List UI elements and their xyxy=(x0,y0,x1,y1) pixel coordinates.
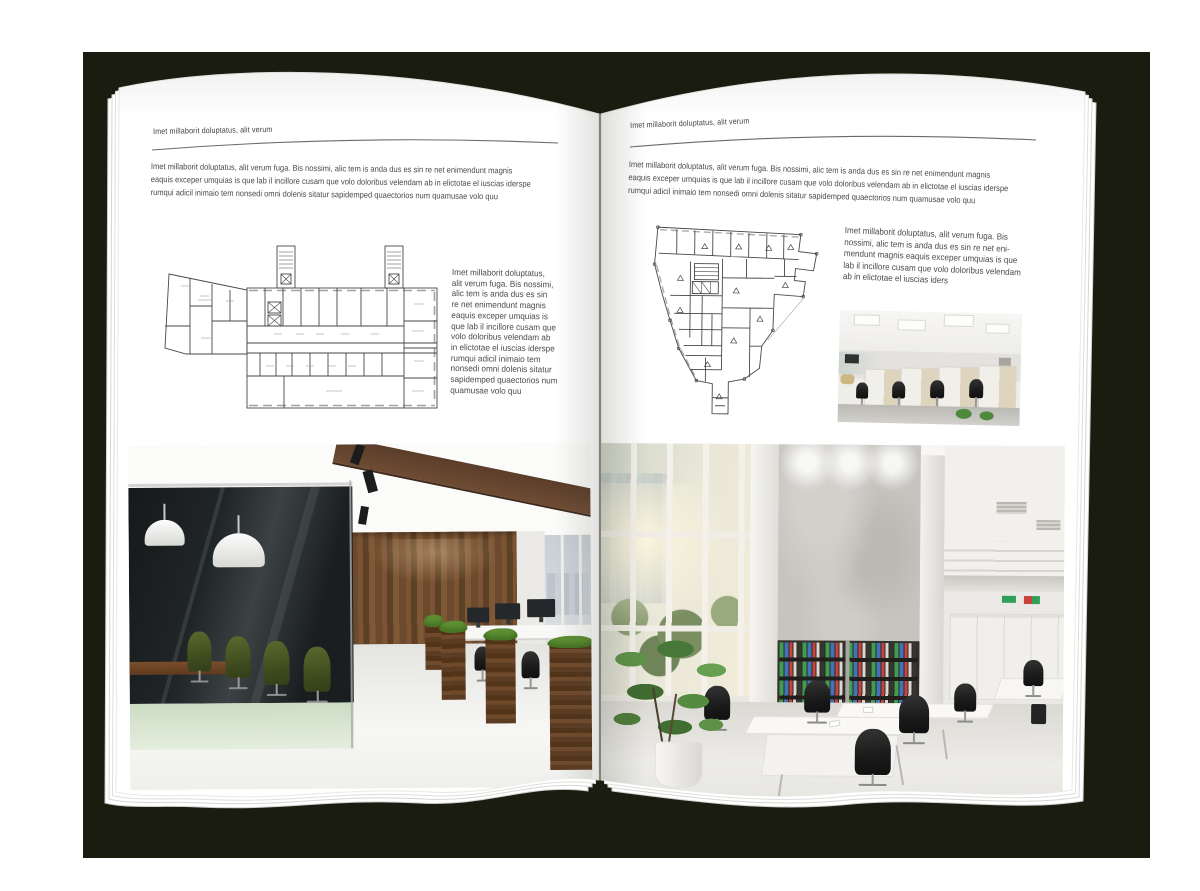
ceiling-light-panel xyxy=(898,319,926,331)
black-office-chair xyxy=(804,680,830,712)
waste-bin xyxy=(1031,704,1046,724)
desktop-monitor xyxy=(495,603,520,619)
floor-plan-right xyxy=(649,217,831,419)
small-plant xyxy=(980,411,994,420)
paper-sheet xyxy=(863,707,873,713)
black-office-chair xyxy=(899,695,929,733)
mezzanine xyxy=(944,445,1065,596)
wood-planter xyxy=(441,630,465,700)
photo-cubicle-office xyxy=(837,310,1021,426)
black-office-chair xyxy=(1023,660,1043,686)
black-office-chair xyxy=(855,729,891,775)
wood-planter xyxy=(485,637,516,723)
desktop-monitor xyxy=(467,607,489,622)
exit-sign xyxy=(1002,596,1016,603)
right-spine-shade xyxy=(600,80,646,792)
wall-monitor xyxy=(845,354,859,363)
glass-meeting-room xyxy=(128,480,354,750)
railing xyxy=(944,541,1064,576)
photo-atrium-office xyxy=(598,443,1065,816)
black-office-chair xyxy=(856,382,868,398)
pendant-lamp-stem xyxy=(163,504,165,520)
green-office-chair xyxy=(187,631,211,671)
green-office-chair xyxy=(303,647,330,692)
black-office-chair xyxy=(892,381,905,398)
right-header-rule xyxy=(628,128,1040,152)
desktop-monitor xyxy=(527,599,555,617)
left-sidebar-paragraph: Imet millaborit doluptatus, alit verum f… xyxy=(450,267,559,397)
photo-office-wood-interior xyxy=(128,443,592,790)
green-office-chair xyxy=(225,636,250,678)
ceiling-light-panel xyxy=(986,323,1010,334)
black-office-chair xyxy=(954,683,976,711)
ceiling-light-panel xyxy=(944,314,974,327)
plan-walls xyxy=(165,246,437,408)
black-office-chair xyxy=(969,379,983,398)
paragraph-line: eaquis exceper umquias is xyxy=(451,310,558,322)
left-spine-shade xyxy=(556,80,600,792)
paragraph-line: quamusae volo quu xyxy=(450,385,557,397)
lounge-chair xyxy=(840,374,854,384)
black-office-chair xyxy=(521,651,539,678)
meeting-room-floor xyxy=(130,702,354,750)
vent-grille xyxy=(1036,520,1060,530)
floor-plan-left xyxy=(156,226,446,416)
wall-wash-lights xyxy=(779,444,921,505)
plant-pot xyxy=(655,741,703,787)
plan-walls xyxy=(653,227,817,415)
wood-wall-glow xyxy=(369,538,499,584)
right-callout-paragraph: Imet millaborit doluptatus, alit verum f… xyxy=(843,225,1023,290)
left-header-rule xyxy=(150,134,562,154)
right-intro-paragraph: Imet millaborit doluptatus, alit verum f… xyxy=(628,158,1009,209)
ceiling-light-panel xyxy=(854,314,880,326)
first-aid-signs xyxy=(1024,596,1040,604)
wood-planter xyxy=(425,624,441,670)
small-plant xyxy=(956,409,972,419)
plan-annotations xyxy=(181,286,424,391)
magazine-mockup-scene: Imet millaborit doluptatus, alit verum I… xyxy=(0,0,1200,891)
balcony-edge xyxy=(944,575,1064,592)
cubicle-workstation xyxy=(978,365,1017,410)
left-intro-paragraph: Imet millaborit doluptatus, alit verum f… xyxy=(151,160,531,204)
black-office-chair xyxy=(930,380,944,398)
white-column xyxy=(749,444,781,746)
vent-grille xyxy=(997,502,1027,514)
white-column xyxy=(919,455,945,707)
green-office-chair xyxy=(263,641,289,685)
pendant-lamp-stem xyxy=(237,515,239,533)
